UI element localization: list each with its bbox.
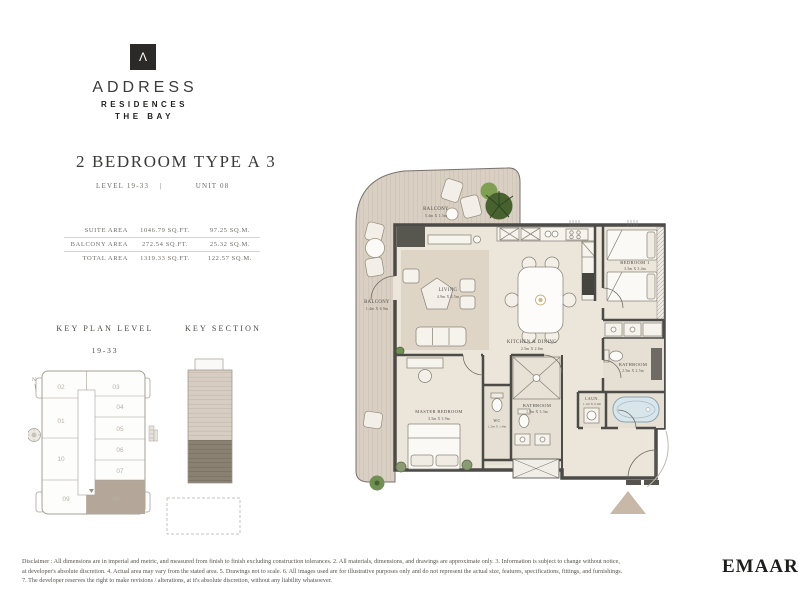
disclaimer-line: Disclaimer : All dimensions are in imper…: [22, 557, 722, 567]
row-sqm: 97.25 SQ.M.: [202, 227, 258, 234]
brand-sub-residences: RESIDENCES: [60, 100, 226, 109]
key-section-title: KEY SECTION: [178, 324, 268, 333]
svg-text:08: 08: [112, 496, 120, 503]
svg-text:09: 09: [62, 496, 70, 503]
tower-cap: [195, 359, 223, 371]
key-plan-diagram: N: [28, 360, 158, 542]
row-label: TOTAL AREA: [64, 255, 128, 262]
key-section-diagram: [165, 355, 257, 555]
svg-text:1.2m X 1.4m: 1.2m X 1.4m: [488, 425, 507, 429]
level-unit-line: LEVEL 19-33 | UNIT 08: [96, 182, 229, 190]
room-label-master: MASTER BEDROOM: [415, 409, 462, 414]
svg-text:1.9m X 3.3m: 1.9m X 3.3m: [526, 410, 548, 414]
svg-text:05: 05: [116, 426, 124, 433]
service-duct: [513, 459, 559, 478]
svg-text:2.5m X 2.5m: 2.5m X 2.5m: [622, 369, 644, 373]
brand-name: ADDRESS: [60, 79, 226, 97]
svg-text:06: 06: [116, 447, 124, 454]
svg-text:5.4m X 1.5m: 5.4m X 1.5m: [425, 214, 447, 218]
svg-text:02: 02: [57, 384, 65, 391]
svg-text:2.5m X 2.6m: 2.5m X 2.6m: [521, 347, 543, 351]
podium-outline: [167, 498, 240, 534]
svg-text:01: 01: [57, 418, 65, 425]
building-footprint: 02 03 01 04 05 10 06 07 09 08: [36, 371, 150, 514]
svg-text:10: 10: [57, 456, 65, 463]
key-plan-title: KEY PLAN LEVEL: [40, 324, 170, 333]
disclaimer: Disclaimer : All dimensions are in imper…: [22, 557, 722, 586]
svg-text:04: 04: [116, 404, 124, 411]
room-label-bathroom1: BATHROOM: [523, 403, 551, 408]
svg-text:N: N: [32, 377, 36, 383]
brand-logo: Λ ADDRESS RESIDENCES THE BAY: [60, 44, 226, 121]
brand-mark-icon: Λ: [130, 44, 156, 70]
page-title: 2 BEDROOM TYPE A 3: [76, 152, 276, 172]
tower-upper-floors: [188, 370, 232, 440]
room-label-living: LIVING: [439, 288, 458, 293]
room-label-laundry: LAUN.: [585, 396, 599, 401]
key-plan-subtitle: 19-33: [40, 346, 170, 355]
row-sqft: 272.54 SQ.FT.: [128, 241, 202, 248]
buildings-icon: [149, 426, 158, 441]
table-row: BALCONY AREA 272.54 SQ.FT. 25.32 SQ.M.: [64, 238, 260, 252]
room-label-bathroom2: BATHROOM: [619, 362, 647, 367]
row-sqft: 1319.33 SQ.FT.: [128, 255, 202, 262]
svg-text:03: 03: [112, 384, 120, 391]
room-label-balcony-top: BALCONY: [423, 207, 449, 212]
brochure-page: Λ ADDRESS RESIDENCES THE BAY 2 BEDROOM T…: [0, 0, 800, 600]
svg-text:3.5m X 3.9m: 3.5m X 3.9m: [428, 417, 450, 421]
entry-triangle: [610, 491, 646, 514]
disclaimer-line: 7. The developer reserves the right to m…: [22, 576, 722, 586]
room-label-wc: WC: [493, 418, 500, 423]
svg-text:1.4m X 6.9m: 1.4m X 6.9m: [366, 307, 388, 311]
row-sqm: 122.57 SQ.M.: [202, 255, 258, 262]
roundabout-icon: [28, 429, 41, 442]
svg-text:07: 07: [116, 468, 124, 475]
tower-highlight-floors: [188, 440, 232, 483]
unit-label: UNIT 08: [196, 182, 230, 190]
divider: |: [160, 182, 163, 190]
room-label-balcony-side: BALCONY: [364, 300, 390, 305]
floor-plan: BALCONY 5.4m X 1.5m BALCONY 1.4m X 6.9m …: [348, 160, 693, 536]
level-label: LEVEL 19-33: [96, 182, 149, 190]
brand-sub-thebay: THE BAY: [60, 112, 226, 121]
disclaimer-line: at developer's absolute discretion. 4. A…: [22, 567, 722, 577]
svg-text:3.5m X 3.4m: 3.5m X 3.4m: [624, 267, 646, 271]
core-shaft: [78, 390, 95, 495]
row-label: BALCONY AREA: [64, 241, 128, 248]
row-label: SUITE AREA: [64, 227, 128, 234]
row-sqft: 1046.79 SQ.FT.: [128, 227, 202, 234]
emaar-logo: EMAAR: [722, 556, 799, 578]
row-sqm: 25.32 SQ.M.: [202, 241, 258, 248]
room-label-bedroom1: BEDROOM 1: [620, 260, 649, 265]
room-label-kitchen: KITCHEN & DINING: [507, 340, 557, 345]
table-row: TOTAL AREA 1319.33 SQ.FT. 122.57 SQ.M.: [64, 252, 260, 265]
svg-text:4.9m X 4.5m: 4.9m X 4.5m: [437, 295, 459, 299]
table-row: SUITE AREA 1046.79 SQ.FT. 97.25 SQ.M.: [64, 224, 260, 238]
area-table: SUITE AREA 1046.79 SQ.FT. 97.25 SQ.M. BA…: [64, 224, 260, 265]
svg-text:1.1m X 0.9m: 1.1m X 0.9m: [583, 402, 602, 406]
